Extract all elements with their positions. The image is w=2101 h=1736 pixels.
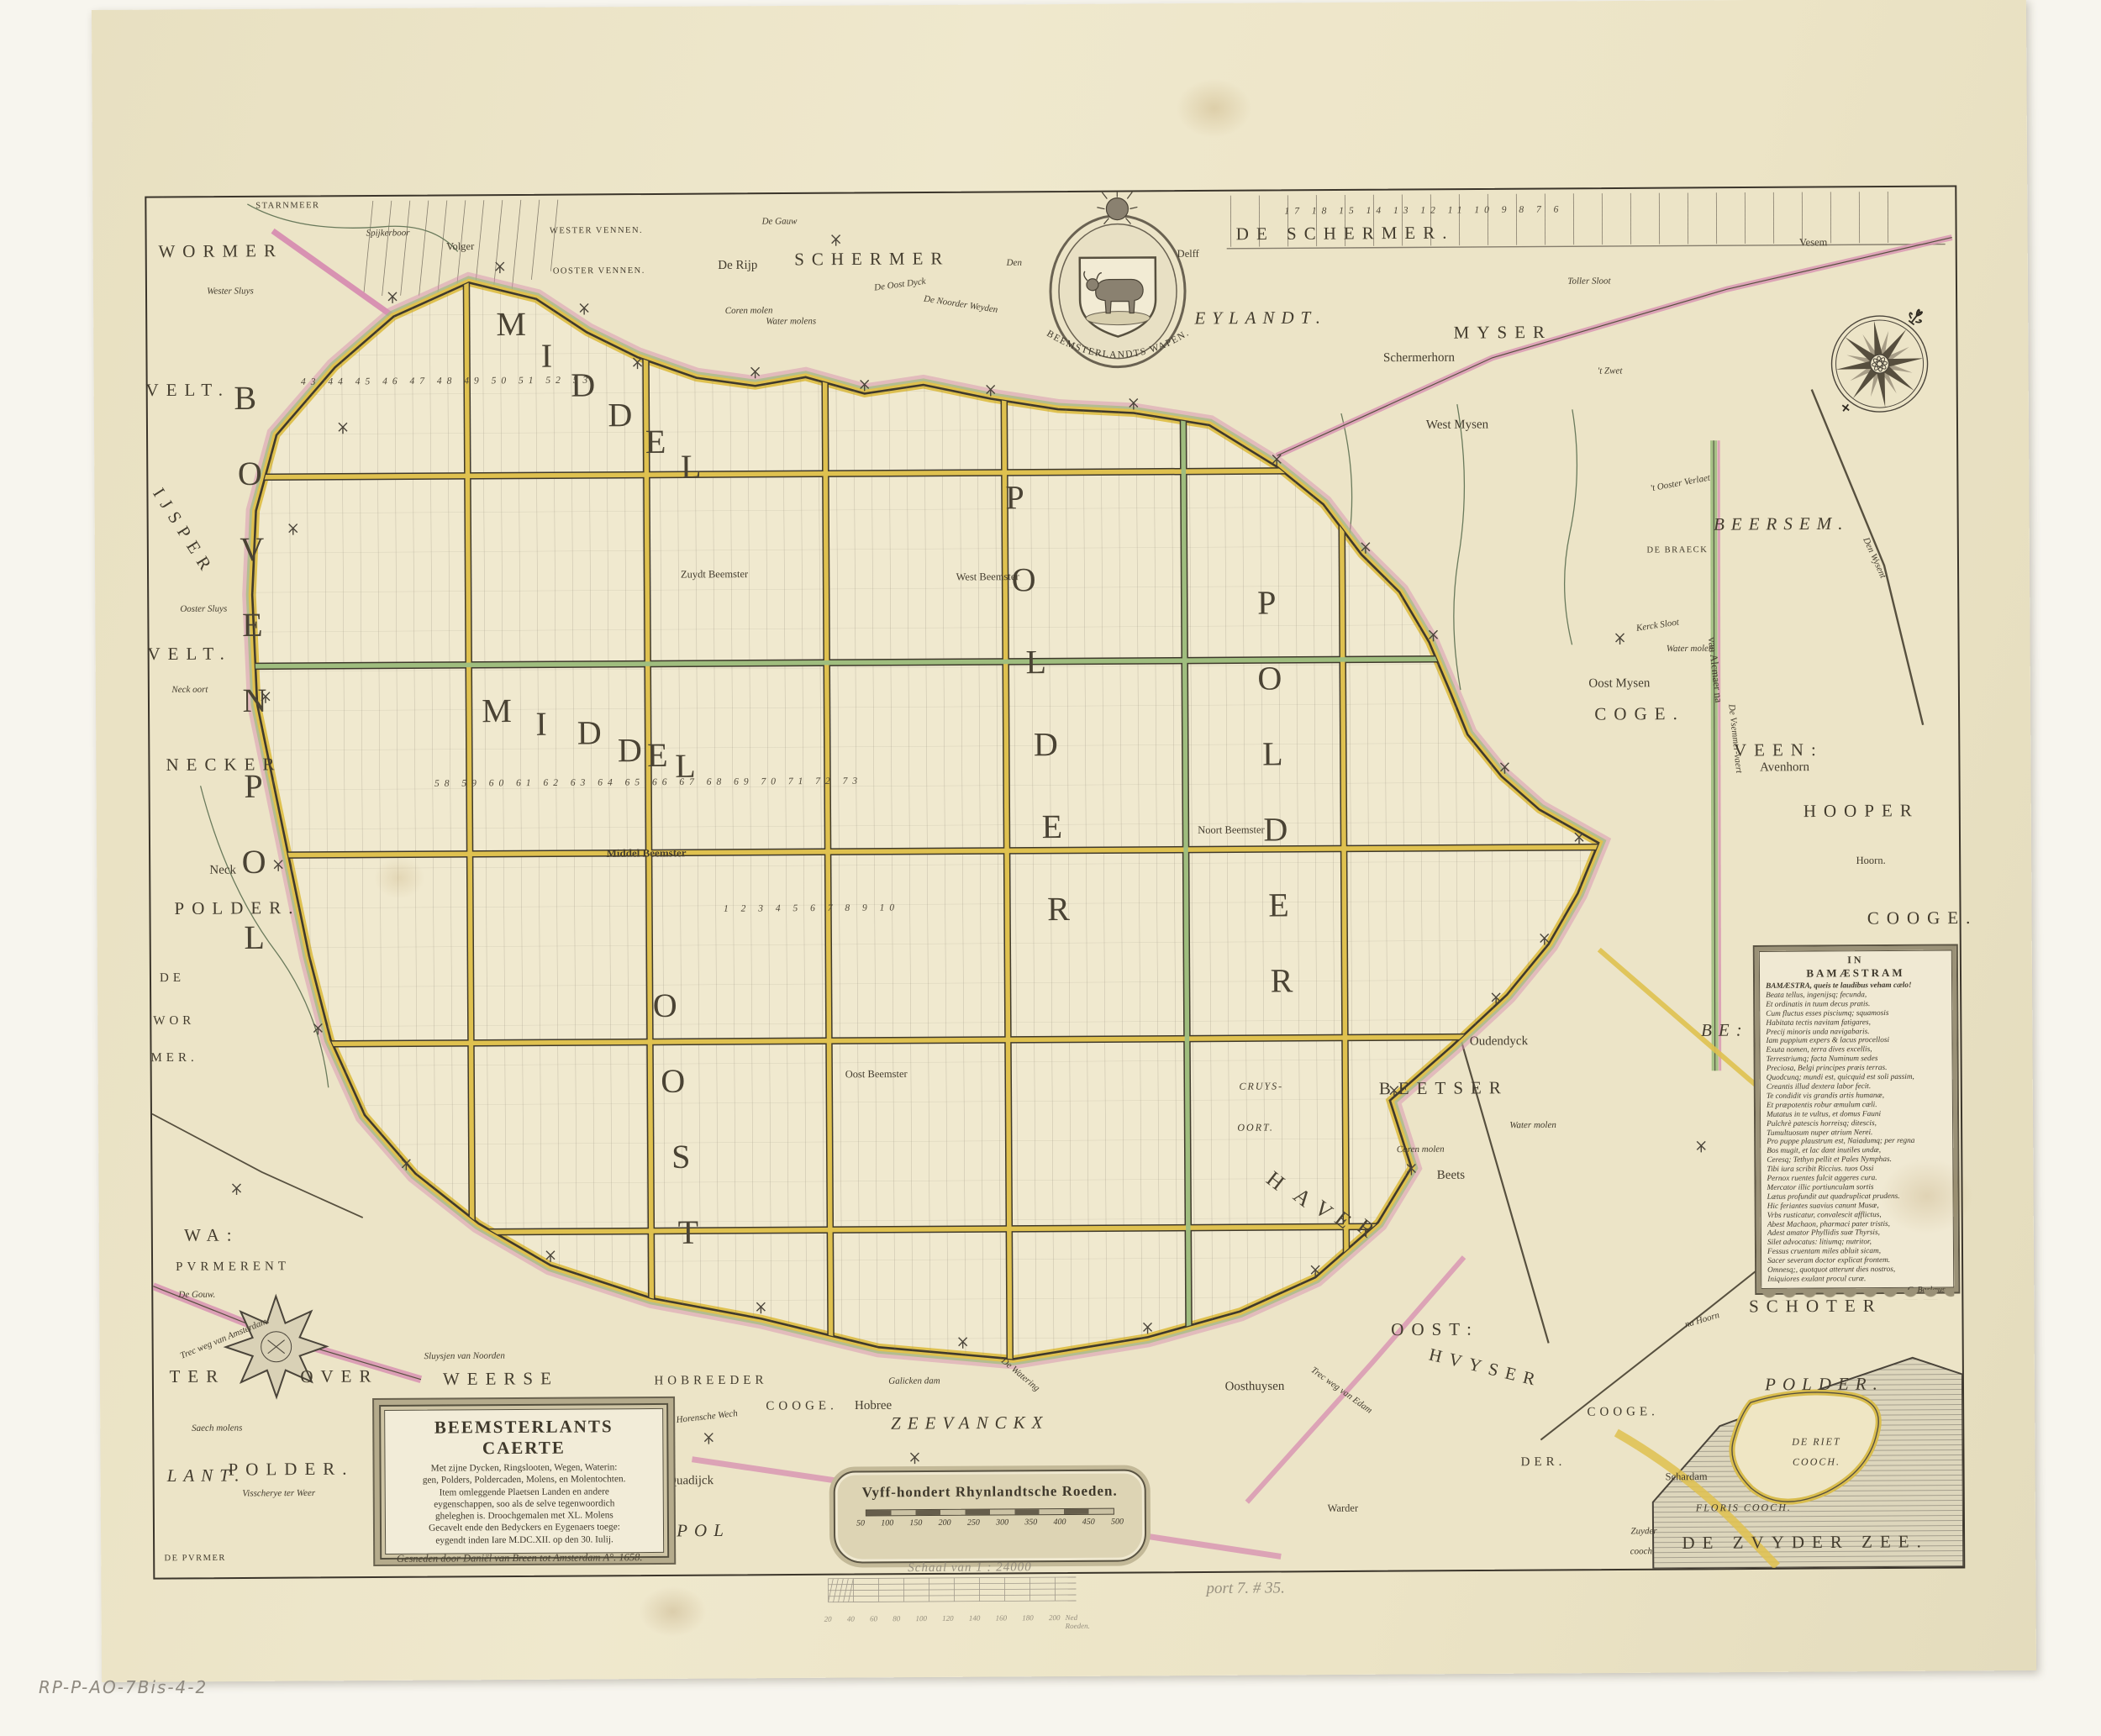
map-label: WEERSE <box>443 1370 559 1388</box>
map-label: OOSTER VENNEN. <box>553 267 645 276</box>
map-label: P <box>1257 586 1276 619</box>
scale-cartouche: Vyff-hondert Rhynlandtsche Roeden. 50100… <box>834 1469 1147 1563</box>
map-label: POLDER. <box>229 1460 355 1479</box>
map-label: OVER <box>300 1367 378 1386</box>
pencil-tick: 20 <box>824 1615 832 1623</box>
pencil-tick: 100 <box>915 1614 927 1623</box>
map-label: EYLANDT. <box>1194 309 1327 328</box>
title-body-line: Gecavelt ende den Bedyckers en Eygenaers… <box>394 1521 655 1534</box>
map-label: E <box>242 608 263 642</box>
map-label: Kerck Sloot <box>1635 618 1679 634</box>
map-label: Horensche Wech <box>676 1409 738 1425</box>
pencil-scale-sketch <box>824 1574 1084 1611</box>
scale-tick: 400 <box>1053 1518 1066 1527</box>
map-label: Den Wysent <box>1861 536 1887 580</box>
map-label: SCHERMER <box>794 250 950 268</box>
map-label: Warder <box>1328 1503 1359 1514</box>
map-label: L <box>1262 737 1283 771</box>
map-label: Quadijck <box>667 1475 713 1487</box>
map-label: E <box>645 425 666 459</box>
map-label: POL <box>677 1522 730 1539</box>
map-label: E <box>1042 810 1063 844</box>
map-label: Water molens <box>766 317 816 326</box>
map-label: Neck oort <box>171 686 208 695</box>
pencil-tick: 180 <box>1022 1613 1034 1622</box>
map-label: Coren molen <box>725 307 773 316</box>
map-label: D <box>1263 813 1287 846</box>
map-label: O <box>238 457 262 491</box>
map-label: Schermerhorn <box>1383 352 1455 366</box>
map-label: T <box>678 1216 699 1249</box>
map-label: COOGE. <box>1587 1406 1659 1419</box>
map-label: POLDER. <box>1765 1376 1884 1394</box>
map-label: West Beemster <box>956 571 1019 582</box>
map-label: MYSER <box>1454 324 1552 342</box>
poem-header-2: BAMÆSTRAM <box>1766 966 1946 981</box>
title-panel: BEEMSTERLANTS CAERTE Met zijne Dycken, R… <box>384 1408 664 1555</box>
map-label: DE RIET <box>1792 1436 1840 1446</box>
map-label: Zuyder <box>1630 1527 1656 1536</box>
pencil-tick: 120 <box>942 1614 954 1623</box>
map-label: PVRMERENT <box>176 1260 290 1274</box>
map-label: Sluysjen van Noorden <box>424 1352 505 1362</box>
map-label: De Gouw. <box>178 1291 215 1300</box>
scan-background: { "title_cartouche": { "title": "BEEMSTE… <box>0 0 2101 1736</box>
map-label: Middel Beemster <box>607 847 687 859</box>
map-label: COOCH. <box>1793 1456 1840 1466</box>
map-label: POLDER. <box>174 899 300 918</box>
map-label: VELT. <box>145 381 230 400</box>
map-label: HOOPER <box>1803 802 1919 820</box>
map-label: 1 2 3 4 5 6 7 8 9 10 <box>724 903 899 914</box>
map-label: OOST: <box>1391 1320 1479 1339</box>
pencil-tick: 200 <box>1049 1613 1061 1622</box>
title-body: Met zijne Dycken, Ringslooten, Wegen, Wa… <box>394 1461 656 1547</box>
map-label: De Noorder Weyden <box>923 295 998 315</box>
title-body-line: gen, Polders, Poldercaden, Molens, en Mo… <box>394 1473 655 1486</box>
map-label: BEERSEM. <box>1714 515 1850 534</box>
map-label: 't Zwet <box>1598 366 1623 376</box>
stain <box>1176 79 1251 139</box>
map-label: DE ZVYDER ZEE. <box>1682 1533 1929 1552</box>
map-label: HOBREEDER <box>654 1375 767 1388</box>
map-label: Oudendyck <box>1470 1035 1528 1048</box>
scale-tick: 150 <box>909 1518 922 1528</box>
map-label: VEEN: <box>1734 741 1824 760</box>
map-label: Zuydt Beemster <box>681 569 748 580</box>
map-label: COGE. <box>1594 705 1685 723</box>
pencil-inventory-note: port 7. # 35. <box>1206 1579 1285 1598</box>
map-label: TER <box>169 1368 225 1386</box>
map-label: Volger <box>446 241 474 252</box>
map-label: 17 18 15 14 13 12 11 10 9 8 7 6 <box>1285 206 1564 218</box>
pencil-unit: Ned Roeden. <box>1066 1613 1102 1630</box>
map-label: cooch. <box>1630 1547 1655 1556</box>
map-label: O <box>653 989 677 1023</box>
map-label: R <box>1047 892 1070 926</box>
map-label: E <box>647 739 668 772</box>
map-label: O <box>1257 661 1282 695</box>
pencil-diagonal-scale: 20406080100120140160180200 Ned Roeden. <box>824 1574 1101 1632</box>
scale-tick: 500 <box>1111 1518 1124 1527</box>
map-label: 43 44 45 46 47 48 49 50 51 52 53 <box>301 376 592 388</box>
title-body-line: eygendt inden Iare M.DC.XII. op den 30. … <box>394 1533 655 1547</box>
map-label: WESTER VENNEN. <box>550 227 643 236</box>
poem-panel: IN BAMÆSTRAM BAMÆSTRA, queis te laudibus… <box>1755 946 1959 1293</box>
poem-lines: BAMÆSTRA, queis te laudibus veham cælo!B… <box>1766 981 1947 1285</box>
map-label: Neck <box>209 865 236 877</box>
map-label: D <box>608 398 632 432</box>
map-label: D <box>577 716 602 750</box>
map-label: L <box>244 921 265 955</box>
map-label: Hoorn. <box>1856 855 1886 866</box>
map-label: IJSPER <box>150 485 219 579</box>
map-label: Coren molen <box>1397 1145 1445 1155</box>
map-label: COOGE. <box>1867 909 1978 928</box>
map-label: Trec weg van Edam <box>1309 1365 1374 1415</box>
scale-bar <box>866 1508 1114 1517</box>
poem-scallop-border <box>1761 1290 1954 1301</box>
map-label: H <box>1262 1167 1288 1194</box>
scale-tick: 250 <box>967 1518 980 1528</box>
pencil-tick-labels: 20406080100120140160180200 <box>824 1613 1061 1623</box>
title-cartouche: BEEMSTERLANTS CAERTE Met zijne Dycken, R… <box>379 1403 669 1560</box>
map-label: Noort Beemster <box>1198 824 1265 835</box>
pencil-tick: 140 <box>969 1614 981 1623</box>
map-label: N <box>242 684 266 718</box>
map-label: M <box>496 308 526 341</box>
map-label: Oost Mysen <box>1588 677 1650 690</box>
map-label: Visscherye ter Weer <box>242 1489 315 1499</box>
map-label: Oost Beemster <box>845 1069 908 1080</box>
map-label: A <box>1289 1184 1315 1211</box>
map-label: D <box>618 734 642 767</box>
map-label: R <box>1271 964 1293 997</box>
map-label: S <box>671 1140 690 1174</box>
map-label: WORMER <box>158 242 283 260</box>
map-label: Delff <box>1177 249 1199 260</box>
poem-header-1: IN <box>1766 954 1946 967</box>
map-label: COOGE. <box>766 1400 838 1413</box>
map-label: DER. <box>1521 1456 1567 1469</box>
map-label: Spijkerboor <box>366 229 410 238</box>
map-label: E <box>1331 1207 1355 1233</box>
map-label: DE PVRMER <box>165 1555 226 1564</box>
poem-line: Iniquiores exulant procul curæ. <box>1767 1275 1947 1285</box>
map-label: Oosthuysen <box>1225 1381 1285 1393</box>
map-label: HVYSER <box>1427 1345 1544 1390</box>
map-label: V <box>240 533 264 566</box>
map-label: Beets <box>1437 1170 1465 1182</box>
map-label: I <box>541 339 553 373</box>
map-label: CRUYS- <box>1239 1081 1283 1091</box>
engraver-imprint: Gesneden door Daniël van Breen tot Amste… <box>380 1551 659 1565</box>
map-label: P <box>244 770 262 803</box>
scale-tick: 350 <box>1024 1518 1037 1527</box>
map-label: Water molen <box>1509 1121 1556 1130</box>
pencil-tick: 160 <box>996 1613 1008 1622</box>
map-label: West Mysen <box>1426 418 1488 431</box>
map-label: Vesem <box>1799 237 1827 248</box>
pencil-tick: 60 <box>870 1614 877 1623</box>
map-label: Ooster Sluys <box>180 605 227 614</box>
map-label: O <box>242 845 266 879</box>
pencil-tick: 80 <box>893 1614 900 1623</box>
map-label: BEETSER <box>1379 1079 1509 1097</box>
map-label: De Watering <box>999 1356 1041 1393</box>
scale-tick-labels: 50100150200250300350400450500 <box>856 1518 1124 1528</box>
map-label: De Vsemmer-vaert <box>1726 703 1743 773</box>
map-label: MER. <box>150 1052 197 1065</box>
map-label: P <box>1005 481 1024 514</box>
map-label: na Hoorn <box>1684 1311 1721 1330</box>
map-label: O <box>661 1065 685 1098</box>
map-label: Trec weg van Amsterdam. <box>179 1316 271 1360</box>
pencil-tick: 40 <box>847 1615 855 1623</box>
pencil-scale-note: Schaal van 1 : 24000 <box>908 1560 1032 1576</box>
scale-tick: 300 <box>996 1518 1008 1527</box>
map-label: van Alcmaer na <box>1706 637 1724 703</box>
engraved-plate: BEEMSTERLANDTS WAPEN. <box>145 185 1965 1579</box>
map-label: Toller Sloot <box>1567 277 1610 287</box>
map-label: Galicken dam <box>888 1376 940 1386</box>
scale-tick: 200 <box>939 1518 951 1528</box>
map-label: Hobree <box>855 1400 892 1412</box>
map-label: L <box>681 450 702 484</box>
map-label: VELT. <box>147 645 232 664</box>
map-label: De Rijp <box>718 260 757 272</box>
map-labels-layer: BOVENPOLMIDDELMIDDELPOLDERPOLDEROOSTHAVE… <box>146 187 1963 1578</box>
map-label: DE SCHERMER. <box>1236 224 1455 244</box>
stain <box>639 1586 706 1637</box>
map-label: ZEEVANCKX <box>891 1414 1049 1433</box>
map-label: I <box>535 708 547 741</box>
map-label: V <box>1310 1197 1336 1223</box>
map-sheet: BEEMSTERLANDTS WAPEN. <box>92 0 2036 1682</box>
map-label: De Oost Dyck <box>874 277 927 293</box>
map-label: FLORIS COOCH. <box>1696 1502 1792 1513</box>
map-label: Den <box>1007 259 1022 268</box>
map-label: R <box>1353 1215 1378 1241</box>
scale-tick: 100 <box>881 1518 893 1528</box>
map-label: BE: <box>1701 1022 1749 1039</box>
map-label: Schardam <box>1666 1471 1708 1482</box>
map-label: NECKER <box>166 755 282 774</box>
map-label: STARNMEER <box>255 202 319 211</box>
collection-inventory-mark: RP-P-AO-7Bis-4-2 <box>39 1677 208 1697</box>
map-label: D <box>1034 728 1058 761</box>
map-label: WOR <box>153 1015 195 1028</box>
map-label: E <box>1268 888 1289 922</box>
map-label: L <box>1025 645 1046 679</box>
scale-title: Vyff-hondert Rhynlandtsche Roeden. <box>835 1482 1145 1501</box>
map-label: De Gauw <box>762 217 798 226</box>
map-title: BEEMSTERLANTS CAERTE <box>393 1416 654 1460</box>
map-label: Avenhorn <box>1760 761 1809 774</box>
map-label: WA: <box>184 1227 240 1244</box>
map-label: DE <box>160 972 185 985</box>
scale-tick: 50 <box>856 1518 865 1528</box>
map-label: OORT. <box>1237 1122 1274 1132</box>
map-label: DE BRAECK <box>1647 546 1709 555</box>
map-label: M <box>482 694 512 728</box>
map-label: 58 59 60 61 62 63 64 65 66 67 68 69 70 7… <box>434 777 862 790</box>
map-label: Wester Sluys <box>207 287 254 296</box>
map-label: Saech molens <box>192 1423 242 1433</box>
map-label: 't Ooster Verlaet <box>1650 474 1711 494</box>
map-label: B <box>234 381 256 415</box>
scale-tick: 450 <box>1082 1518 1095 1527</box>
